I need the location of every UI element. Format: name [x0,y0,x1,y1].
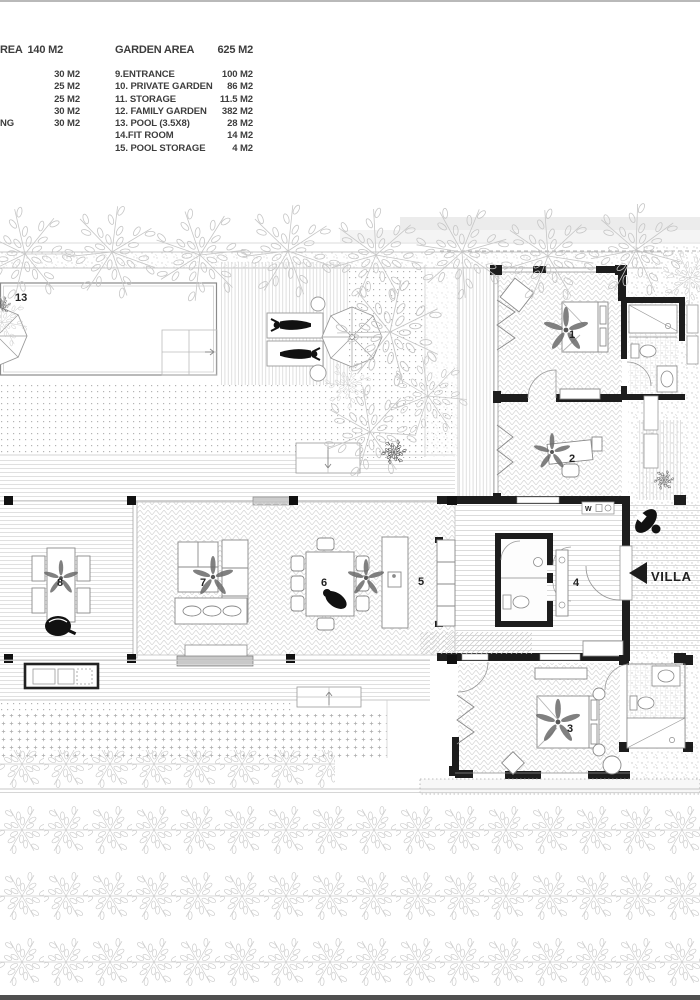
sink-counter [652,666,680,686]
desk-chair [562,464,579,477]
pool-storage-structure [25,664,98,688]
chair [291,596,304,611]
room-label-2: 2 [569,453,575,465]
kitchen-cabinet [437,540,455,626]
side-table [310,365,326,381]
room-label-5: 5 [418,576,424,588]
shrub-field [0,795,700,994]
chair [77,556,90,581]
toilet [640,345,656,357]
side-shelf [592,437,602,451]
room-label-pool: 13 [15,292,27,304]
pool [1,283,217,375]
planter [644,396,658,430]
floor-plan-page: REA 140 M2 30 M2 25 M2 25 M2 30 M2 NG30 … [0,0,700,1000]
garden-steps [296,443,360,473]
planter-box [185,645,247,657]
ac-unit [687,305,698,333]
page-bottom-border [0,995,700,1000]
dining-table [306,552,354,616]
glass-wall [494,268,498,500]
villa-label: VILLA [651,569,692,584]
console [583,641,623,656]
room-label-4: 4 [573,577,580,589]
ac-unit [687,336,698,364]
window [540,654,580,660]
room-label-7: 7 [200,577,206,589]
south-deck-band [0,660,430,758]
chair [356,596,369,611]
chair [32,588,45,613]
dotted-paving [0,385,455,457]
site-plan-drawing: VILLA W [0,0,700,1000]
shrub-row [0,750,335,792]
chair [77,588,90,613]
wc-toilet [513,596,529,608]
side-table [311,297,325,311]
chair [317,618,334,630]
toilet [638,697,654,709]
wc-sink [534,558,543,567]
window [517,497,559,503]
round-pouf [603,756,621,774]
living7-furniture [175,540,248,624]
room-label-8: 8 [57,577,63,589]
sink-counter [657,366,677,392]
window [462,654,488,660]
dotted-paving [0,700,295,712]
utility-label: W [585,506,592,513]
glass-wall [133,502,137,658]
garden-steps [297,687,361,707]
pool-area [0,262,382,385]
utility-closet: W [582,502,614,514]
chair [291,556,304,571]
chair [317,538,334,550]
room-label-1: 1 [569,329,575,341]
chair [291,576,304,591]
bench [560,389,600,399]
room-label-6: 6 [321,577,327,589]
living-band: VILLA W [0,495,700,666]
bedroom-block-north [490,265,698,504]
side-walkway [458,268,498,502]
entry-mat [420,632,532,654]
planter [644,434,658,468]
entry-bench [556,550,568,616]
chair [32,556,45,581]
bench [535,668,587,679]
south-terrace [420,779,700,794]
room-label-3: 3 [567,723,573,735]
